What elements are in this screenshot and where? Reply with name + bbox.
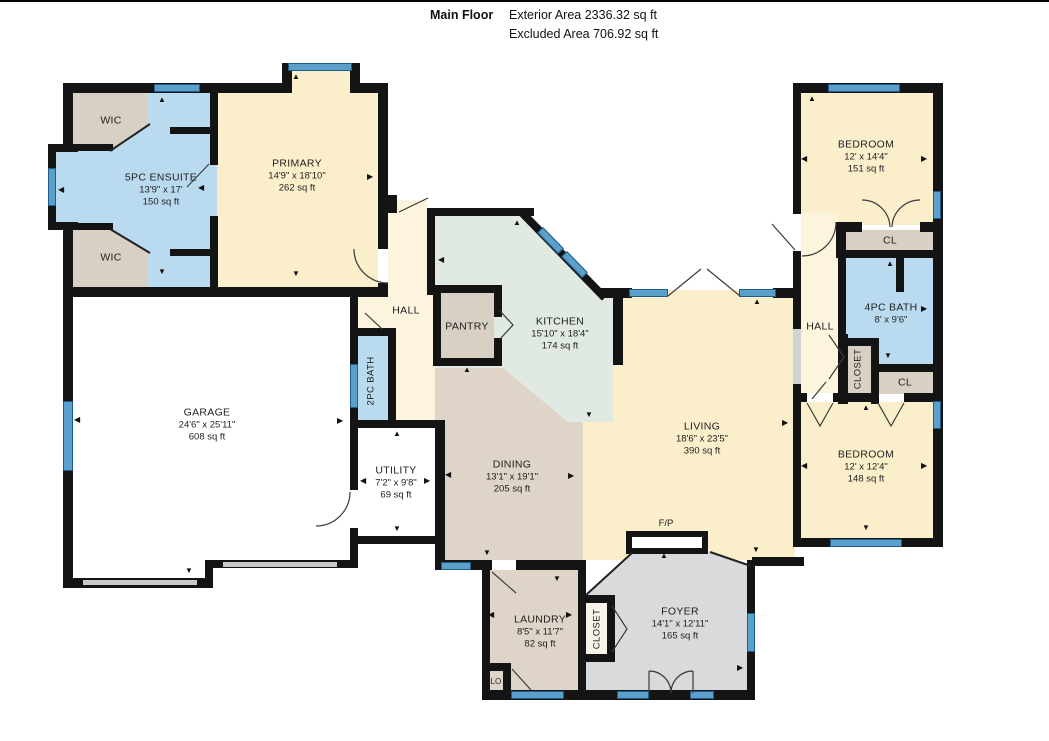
arrow-icon: ◀ [74, 416, 80, 424]
arrow-icon: ▼ [185, 567, 193, 575]
room-label-primary: PRIMARY 14'9" x 18'10" 262 sq ft [268, 158, 325, 195]
room-label-kitchen: KITCHEN 15'10" x 18'4" 174 sq ft [531, 316, 588, 353]
arrow-icon: ▼ [158, 268, 166, 276]
arrow-icon: ▶ [921, 462, 927, 470]
arrow-icon: ▶ [566, 611, 572, 619]
arrow-icon: ◀ [801, 155, 807, 163]
arrow-icon: ▲ [158, 96, 166, 104]
room-label-foyer: FOYER 14'1" x 12'11" 165 sq ft [652, 606, 709, 643]
arrow-icon: ▶ [782, 419, 788, 427]
floorplan-canvas: Main Floor Exterior Area 2336.32 sq ft E… [0, 0, 1049, 741]
arrow-icon: ▶ [337, 417, 343, 425]
arrow-icon: ▼ [483, 549, 491, 557]
arrow-icon: ▲ [393, 430, 401, 438]
room-label-garage: GARAGE 24'6" x 25'11" 608 sq ft [179, 407, 236, 444]
room-label-ensuite: 5PC ENSUITE 13'9" x 17' 150 sq ft [125, 172, 197, 209]
room-label-cl-bottom: CL [898, 376, 912, 389]
arrow-icon: ▶ [367, 173, 373, 181]
room-label-pantry: PANTRY [445, 320, 488, 333]
arrow-icon: ▶ [568, 472, 574, 480]
arrow-icon: ◀ [488, 611, 494, 619]
room-label-dining: DINING 13'1" x 19'1" 205 sq ft [486, 459, 538, 496]
room-label-bath-2pc: 2PC BATH [366, 357, 377, 406]
arrow-icon: ▼ [752, 546, 760, 554]
fireplace-label: F/P [659, 518, 674, 530]
arrow-icon: ▶ [921, 155, 927, 163]
arrow-icon: ▲ [463, 366, 471, 374]
arrow-icon: ▲ [513, 219, 521, 227]
arrow-icon: ▼ [292, 270, 300, 278]
room-label-bedroom-bottom: BEDROOM 12' x 12'4" 148 sq ft [838, 449, 894, 486]
room-label-hall-right: HALL [806, 320, 833, 333]
arrow-icon: ▼ [393, 525, 401, 533]
arrow-icon: ▶ [921, 305, 927, 313]
room-label-clo: CLO [485, 677, 501, 687]
arrow-icon: ▼ [884, 352, 892, 360]
room-label-wic-top: WIC [100, 114, 121, 127]
arrow-icon: ▲ [753, 298, 761, 306]
arrow-icon: ▲ [660, 552, 668, 560]
arrow-icon: ▲ [292, 73, 300, 81]
room-label-wic-bottom: WIC [100, 251, 121, 264]
arrow-icon: ◀ [360, 477, 366, 485]
room-label-hall-left: HALL [392, 304, 419, 317]
arrow-icon: ▼ [553, 575, 561, 583]
room-label-closet-right: CLOSET [853, 349, 864, 389]
arrow-icon: ▶ [737, 664, 743, 672]
arrow-icon: ◀ [58, 186, 64, 194]
arrow-icon: ◀ [445, 471, 451, 479]
room-label-living: LIVING 18'6" x 23'5" 390 sq ft [676, 421, 728, 458]
room-label-utility: UTILITY 7'2" x 9'8" 69 sq ft [375, 465, 417, 502]
arrow-icon: ▲ [808, 95, 816, 103]
arrow-icon: ▲ [886, 260, 894, 268]
room-label-laundry: LAUNDRY 8'5" x 11'7" 82 sq ft [514, 614, 566, 651]
room-label-bedroom-top: BEDROOM 12' x 14'4" 151 sq ft [838, 139, 894, 176]
room-label-bath-4pc: 4PC BATH 8' x 9'6" [865, 302, 918, 327]
room-label-cl-top: CL [883, 234, 897, 247]
arrow-icon: ▼ [862, 524, 870, 532]
arrow-icon: ◀ [438, 256, 444, 264]
arrow-icon: ▼ [585, 411, 593, 419]
arrow-icon: ▶ [424, 477, 430, 485]
arrow-icon: ◀ [198, 184, 204, 192]
arrow-icon: ▲ [862, 404, 870, 412]
arrow-icon: ◀ [801, 462, 807, 470]
room-label-closet-bottom: CLOSET [592, 609, 603, 649]
